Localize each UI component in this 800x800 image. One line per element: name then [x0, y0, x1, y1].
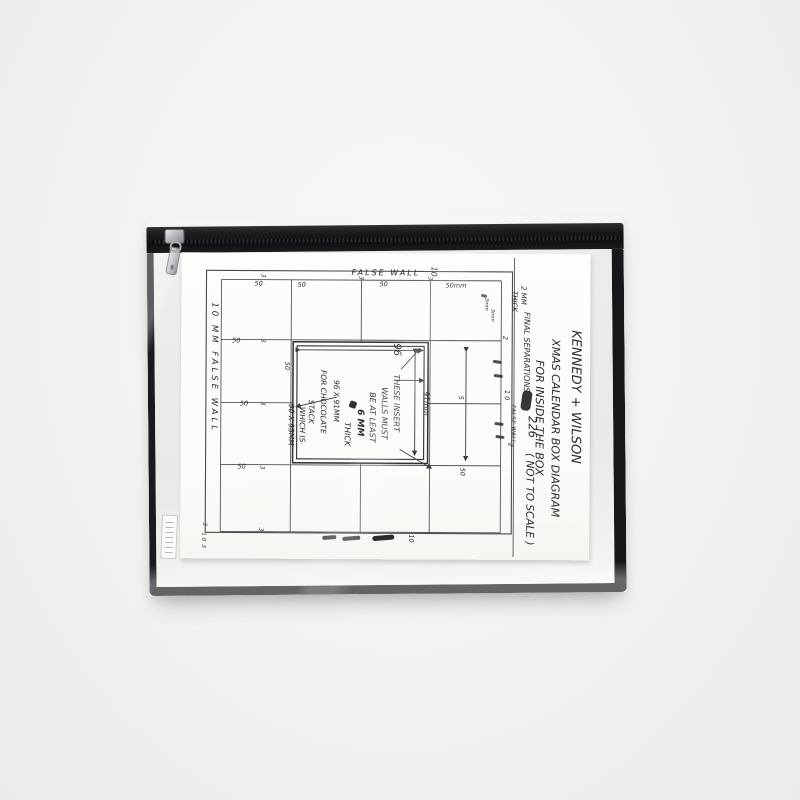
- svg-text:50: 50: [297, 281, 305, 289]
- title-line-2: XMAS CALENDAR BOX DIAGRAM: [548, 338, 562, 518]
- svg-text:THICK: THICK: [510, 291, 518, 314]
- insert-width-label: 96: [391, 343, 402, 356]
- svg-text:THICK: THICK: [343, 422, 352, 447]
- bottom-scribbles: 10: [322, 534, 415, 543]
- svg-text:50: 50: [254, 280, 262, 288]
- svg-text:FINAL SEPARATIONS: FINAL SEPARATIONS: [522, 312, 531, 393]
- brand-tag: [160, 515, 178, 560]
- svg-text:3: 3: [257, 528, 264, 532]
- svg-text:3: 3: [200, 544, 206, 548]
- vinyl-zipper-pouch: FALSE WALL 10 10 MM FALSE WALL 50 50 50 …: [146, 215, 626, 596]
- insert-note: THESE INSERT WALLS MUST BE AT LEAST 6 MM…: [343, 374, 401, 447]
- svg-text:50: 50: [458, 468, 466, 476]
- svg-text:90 X 95MM: 90 X 95MM: [287, 404, 296, 447]
- hand-drawn-diagram: FALSE WALL 10 10 MM FALSE WALL 50 50 50 …: [180, 252, 591, 560]
- grid-lines: [220, 279, 501, 532]
- crossed-out-scribble: [520, 390, 533, 411]
- chocolate-note: 96 X 91MM FOR CHOCOLATE STACK WHICH IS 9…: [287, 370, 341, 447]
- svg-text:50: 50: [232, 336, 240, 344]
- svg-text:WHICH IS: WHICH IS: [298, 407, 307, 443]
- svg-text:50: 50: [379, 280, 387, 288]
- svg-text:50: 50: [283, 362, 291, 370]
- svg-text:2: 2: [501, 336, 509, 340]
- svg-text:50: 50: [240, 400, 248, 408]
- brand-tag-text-squiggle: [164, 519, 174, 555]
- svg-text:3: 3: [259, 466, 266, 470]
- zipper-pull-hole: [170, 265, 174, 270]
- top-right-number: 10: [430, 267, 439, 277]
- corner-notes: 3mm 3mm: [481, 294, 496, 322]
- scale-note: ( NOT TO SCALE ): [523, 453, 535, 545]
- left-wall-label: 10 MM FALSE WALL: [209, 302, 220, 433]
- bottom-left-marks: 3 1 0 3: [200, 522, 207, 548]
- svg-text:3: 3: [259, 402, 266, 406]
- svg-text:3: 3: [427, 276, 434, 280]
- column-width-labels: 50 50 50 50mm: [254, 280, 466, 290]
- svg-text:3: 3: [260, 274, 267, 278]
- svg-text:BE AT LEAST: BE AT LEAST: [368, 392, 377, 444]
- svg-text:50: 50: [238, 463, 246, 471]
- svg-text:2: 2: [507, 443, 515, 447]
- insert-height-label: 91mm: [422, 391, 431, 415]
- margin-number: 226: [526, 416, 540, 438]
- svg-text:50mm: 50mm: [445, 282, 466, 290]
- svg-text:FOR CHOCOLATE: FOR CHOCOLATE: [319, 370, 328, 434]
- zipper-ring: [170, 241, 182, 253]
- crossed-out-scribble: [348, 400, 357, 409]
- title-line-1: KENNEDY + WILSON: [568, 330, 584, 464]
- svg-text:1 0: 1 0: [503, 390, 511, 400]
- svg-text:96 X 91MM: 96 X 91MM: [332, 380, 341, 423]
- svg-text:10: 10: [407, 534, 415, 542]
- svg-text:3: 3: [259, 339, 266, 343]
- vinyl-window: FALSE WALL 10 10 MM FALSE WALL 50 50 50 …: [147, 249, 627, 596]
- svg-text:3mm: 3mm: [489, 309, 495, 322]
- diagram-sheet: FALSE WALL 10 10 MM FALSE WALL 50 50 50 …: [180, 252, 591, 560]
- svg-text:3: 3: [358, 276, 365, 280]
- zipper-teeth: [153, 236, 620, 244]
- svg-text:3mm: 3mm: [483, 298, 489, 311]
- svg-text:2 MM: 2 MM: [519, 286, 527, 305]
- margin-notes: 2 MM THICK FINAL SEPARATIONS KENNEDY + W…: [509, 286, 583, 546]
- svg-text:THESE INSERT: THESE INSERT: [392, 374, 401, 433]
- svg-text:WALLS MUST: WALLS MUST: [380, 387, 389, 440]
- svg-text:STACK: STACK: [307, 400, 316, 425]
- svg-text:5: 5: [457, 396, 465, 400]
- photo-scene: FALSE WALL 10 10 MM FALSE WALL 50 50 50 …: [0, 0, 800, 800]
- svg-text:6 MM: 6 MM: [355, 409, 365, 436]
- svg-text:FALSE WALL: FALSE WALL: [510, 405, 516, 443]
- svg-text:1 0: 1 0: [200, 532, 206, 541]
- svg-text:3: 3: [201, 522, 207, 526]
